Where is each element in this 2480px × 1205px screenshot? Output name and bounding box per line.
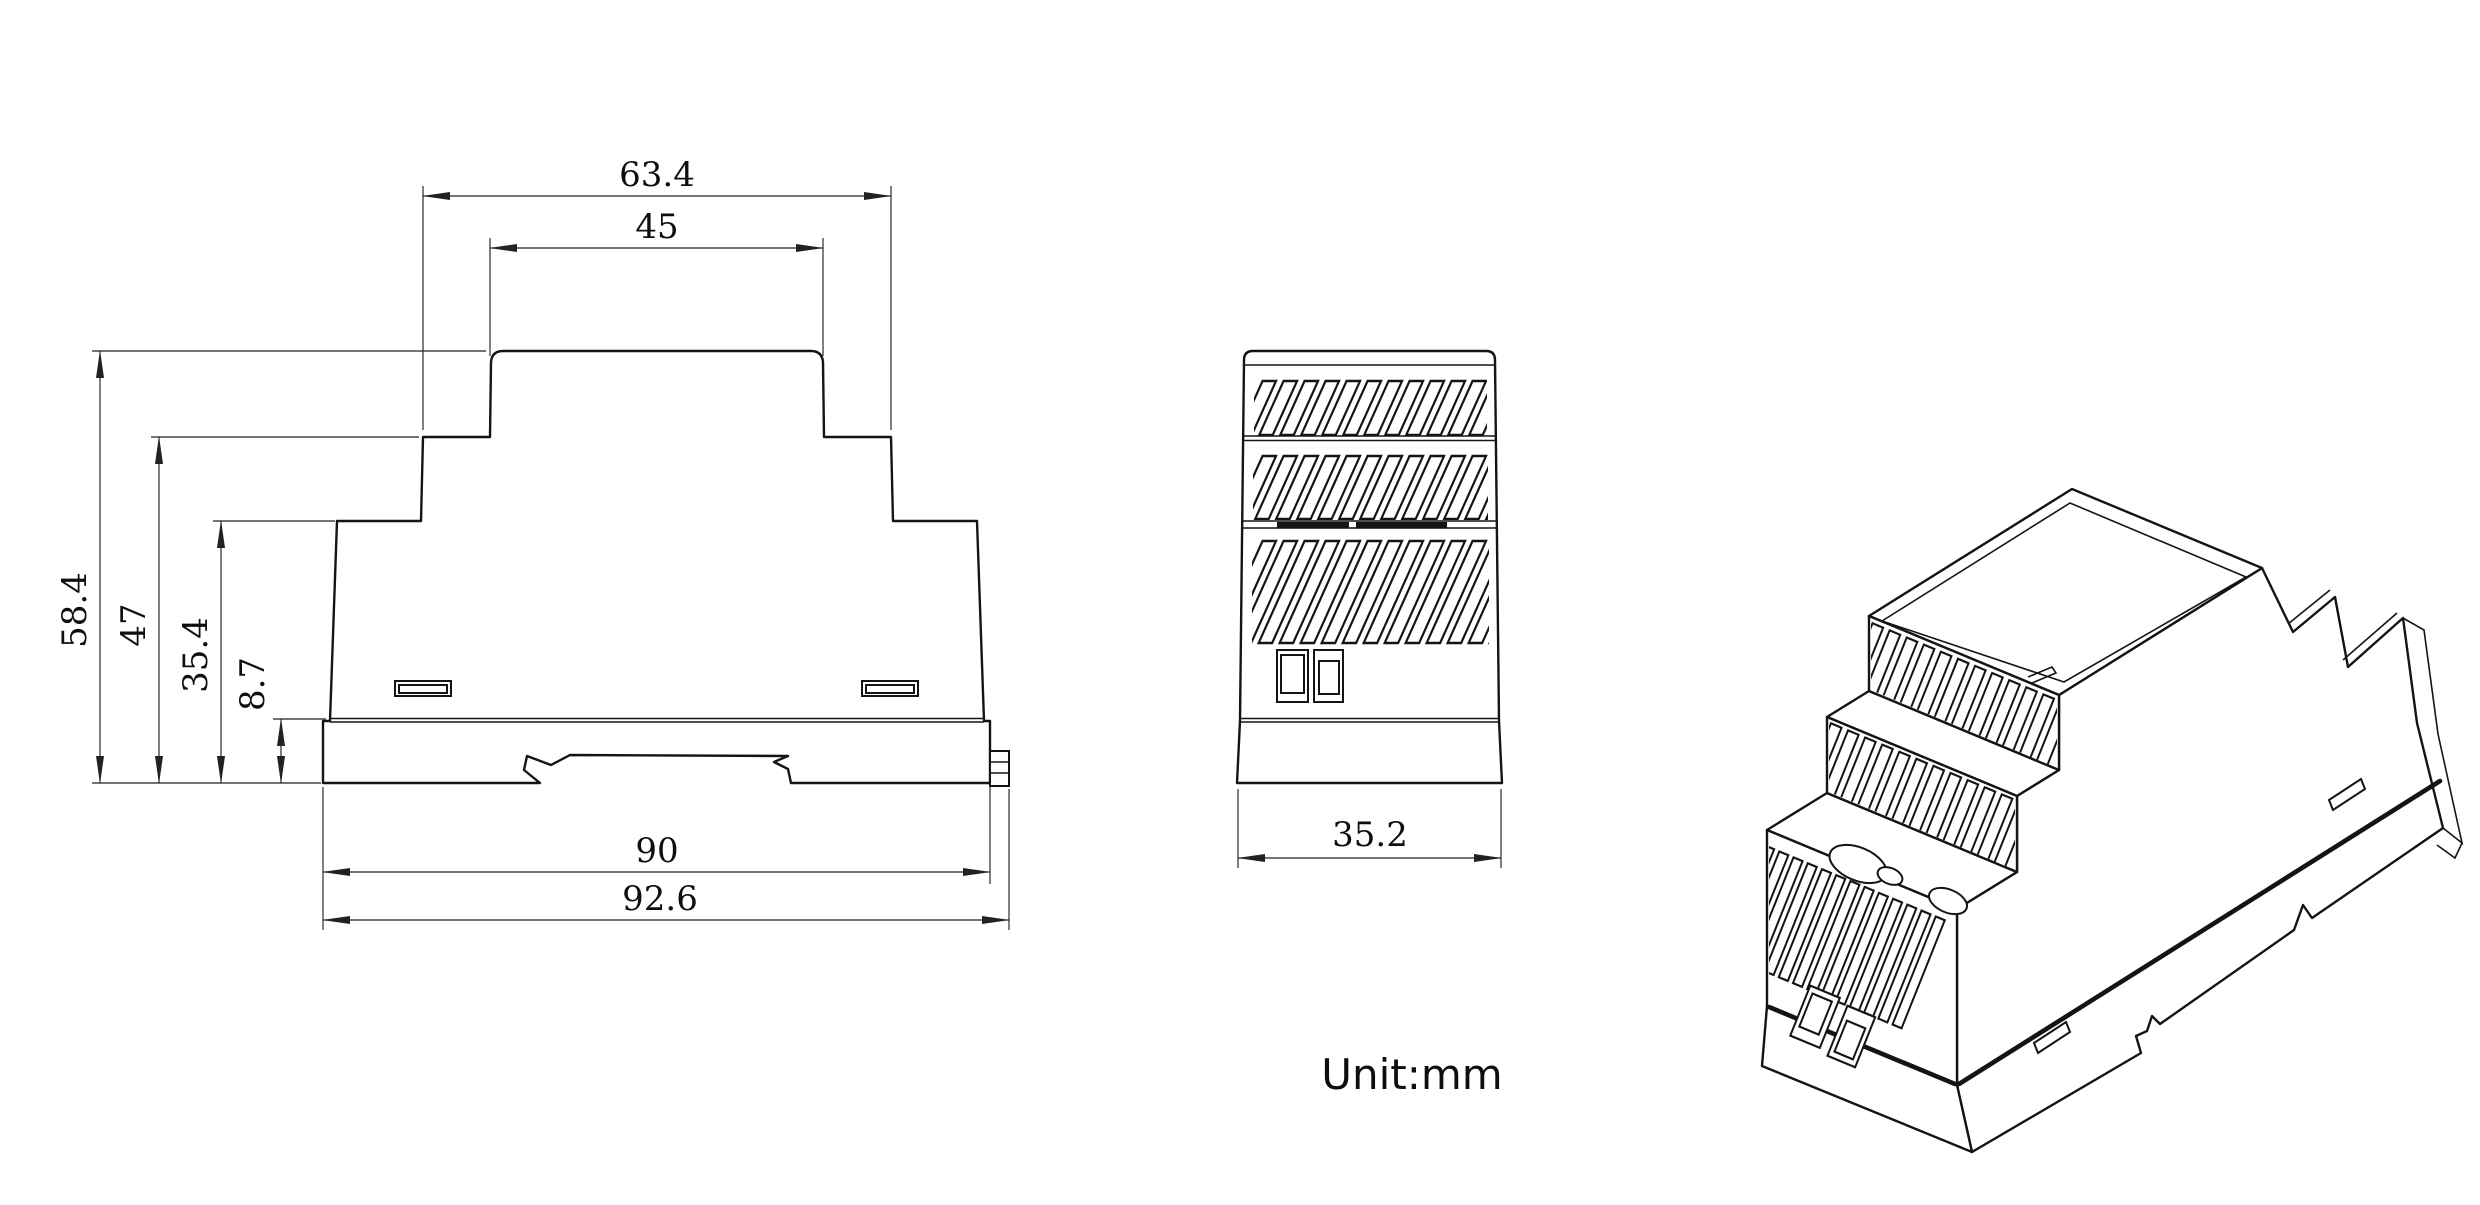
iso-far-clip bbox=[2437, 843, 2462, 858]
dimension-drawing: 63.4 45 58.4 47 35.4 8.7 bbox=[0, 0, 2480, 1205]
front-view: 63.4 45 58.4 47 35.4 8.7 bbox=[55, 155, 1009, 930]
dim-label-35-2: 35.2 bbox=[1332, 815, 1408, 855]
front-slot-left bbox=[395, 681, 451, 696]
dim-35-2: 35.2 bbox=[1238, 789, 1501, 868]
front-slot-right bbox=[862, 681, 918, 696]
dim-45: 45 bbox=[490, 207, 823, 356]
side-view: 35.2 bbox=[1217, 351, 1549, 868]
dim-label-8-7: 8.7 bbox=[233, 657, 273, 711]
dim-8-7: 8.7 bbox=[233, 657, 326, 783]
dim-label-35-4: 35.4 bbox=[176, 617, 216, 693]
dim-label-47: 47 bbox=[114, 603, 154, 646]
step-slot-bar-right bbox=[1356, 522, 1447, 528]
iso-view bbox=[1722, 489, 2462, 1152]
dim-label-90: 90 bbox=[635, 831, 678, 871]
unit-note: Unit:mm bbox=[1321, 1050, 1502, 1099]
step-slot-bar-left bbox=[1277, 522, 1349, 528]
dim-label-45: 45 bbox=[635, 207, 678, 247]
din-clip-tab bbox=[990, 751, 1009, 786]
dim-label-58-4: 58.4 bbox=[55, 572, 95, 648]
drawing-canvas: 63.4 45 58.4 47 35.4 8.7 bbox=[0, 0, 2480, 1205]
dim-35-4: 35.4 bbox=[176, 521, 335, 783]
dim-label-63-4: 63.4 bbox=[619, 155, 695, 195]
dim-label-92-6: 92.6 bbox=[622, 879, 698, 919]
